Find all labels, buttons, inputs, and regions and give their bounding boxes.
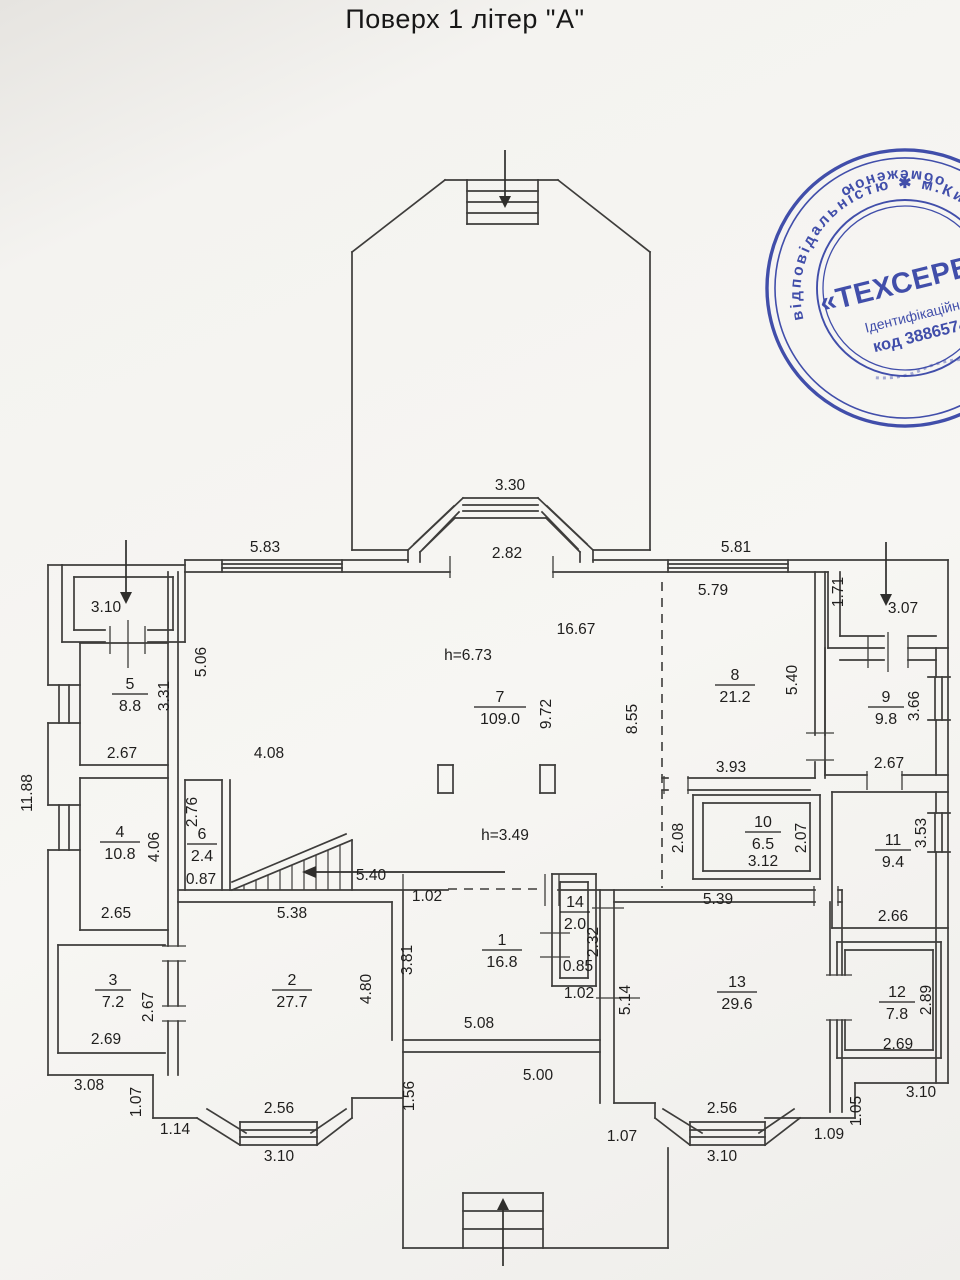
dimension-label: 11.88	[19, 774, 36, 812]
room-number: 5	[126, 676, 135, 693]
dimension-label: 2.66	[878, 908, 908, 925]
entrance-arrows	[120, 150, 892, 1266]
dimension-label: 3.31	[156, 681, 173, 711]
dimension-label: 1.02	[564, 985, 594, 1002]
room-number: 4	[116, 824, 125, 841]
dimension-label: 2.89	[918, 985, 935, 1015]
dimension-label: 4.08	[254, 745, 284, 762]
dimension-label: 1.14	[160, 1121, 191, 1138]
room-area: 8.8	[119, 698, 141, 715]
room-number: 1	[498, 932, 507, 949]
wall-segment	[232, 834, 346, 882]
dimension-label: 16.67	[557, 621, 596, 638]
room-area: 6.5	[752, 836, 774, 853]
dimension-label: 3.53	[913, 818, 930, 848]
wall-segment	[765, 1118, 800, 1145]
room-number: 2	[288, 972, 297, 989]
wall-segment	[197, 1118, 240, 1145]
dimension-label: 2.69	[883, 1036, 913, 1053]
scanned-floor-plan-page: Поверх 1 літер "А" 3.302.825.835.815.793…	[0, 0, 960, 1280]
room-number: 11	[885, 832, 902, 849]
dimension-label: 3.10	[707, 1148, 738, 1165]
dimension-label: 5.39	[703, 891, 733, 908]
dimension-label: 8.55	[624, 704, 641, 734]
room-number: 10	[754, 814, 772, 831]
dimension-label: 4.80	[358, 974, 375, 1005]
dimension-label: 2.56	[707, 1100, 737, 1117]
dimension-label: 1.71	[830, 577, 847, 607]
wall-segment	[317, 1118, 352, 1145]
room-labels: 116.8227.737.2410.858.862.47109.0821.299…	[95, 667, 915, 1023]
dimension-label: 5.79	[698, 582, 728, 599]
room-number: 7	[496, 689, 505, 706]
dimension-label: 5.08	[464, 1015, 494, 1032]
room-area: 10.8	[104, 846, 135, 863]
page-title: Поверх 1 літер "А"	[345, 4, 584, 34]
dimension-label: 2.69	[91, 1031, 121, 1048]
dimension-label: 3.93	[716, 759, 746, 776]
dimension-label: 2.76	[184, 797, 201, 827]
dimension-label: 5.83	[250, 539, 280, 556]
dimension-label: 3.08	[74, 1077, 104, 1094]
dimension-label: 0.87	[186, 871, 216, 888]
room-area: 7.2	[102, 994, 124, 1011]
dimension-label: 3.07	[888, 600, 918, 617]
dimension-label: 3.10	[264, 1148, 295, 1165]
dimension-label: 3.30	[495, 477, 526, 494]
dimension-labels: 3.302.825.835.815.793.101.713.075.0616.6…	[19, 477, 936, 1165]
dimension-label: 1.56	[401, 1081, 418, 1111]
room-area: 16.8	[486, 954, 517, 971]
dimension-label: 5.38	[277, 905, 307, 922]
dimension-label: 9.72	[538, 699, 555, 729]
room-area: 21.2	[719, 689, 750, 706]
dimension-label: 0.85	[563, 958, 593, 975]
room-area: 7.8	[886, 1006, 908, 1023]
dimension-label: 2.65	[101, 905, 131, 922]
dimension-label: 2.67	[140, 992, 157, 1022]
dimension-label: 4.06	[146, 832, 163, 862]
dimension-label: 3.81	[399, 945, 416, 975]
dimension-label: 2.32	[585, 927, 602, 957]
dimension-label: 5.40	[784, 665, 801, 696]
room-area: 9.8	[875, 711, 897, 728]
room-area: 27.7	[276, 994, 307, 1011]
dimension-label: 1.02	[412, 888, 442, 905]
wall-segment	[558, 180, 650, 252]
dimension-label: 2.67	[874, 755, 904, 772]
room-area: 2.0	[564, 916, 586, 933]
room-number: 6	[198, 826, 207, 843]
dimension-label: 2.56	[264, 1100, 294, 1117]
dimension-label: 2.82	[492, 545, 522, 562]
dimension-label: 2.07	[793, 823, 810, 853]
room-number: 13	[728, 974, 746, 991]
dimension-label: 5.81	[721, 539, 751, 556]
floor-plan-drawing: Поверх 1 літер "А" 3.302.825.835.815.793…	[0, 0, 960, 1280]
dimension-label: 1.09	[814, 1126, 844, 1143]
dimension-label: 2.67	[107, 745, 137, 762]
dimension-label: 3.12	[748, 853, 778, 870]
dimension-label: h=3.49	[481, 827, 529, 844]
room-number: 14	[566, 894, 584, 911]
dimension-label: 1.05	[848, 1096, 865, 1126]
dimension-label: 3.66	[906, 691, 923, 721]
room-area: 109.0	[480, 711, 520, 728]
dimension-label: 5.14	[617, 985, 634, 1016]
room-area: 2.4	[191, 848, 213, 865]
round-seal-stamp: відповідальністю ✱ м.Київ ✱ Україна ✱ об…	[738, 116, 960, 456]
dimension-label: h=6.73	[444, 647, 492, 664]
dimension-label: 2.08	[670, 823, 687, 853]
entrance-arrow-head	[120, 592, 132, 604]
entrance-arrow-head	[497, 1198, 509, 1210]
dimension-label: 1.07	[607, 1128, 637, 1145]
room-number: 8	[731, 667, 740, 684]
room-number: 3	[109, 972, 118, 989]
dimension-label: 1.07	[128, 1087, 145, 1117]
dimension-label: 5.06	[193, 647, 210, 677]
dimension-label: 5.40	[356, 867, 387, 884]
dimension-label: 5.00	[523, 1067, 554, 1084]
room-number: 9	[882, 689, 891, 706]
room-number: 12	[888, 984, 906, 1001]
dimension-label: 3.10	[91, 599, 122, 616]
wall-segment	[352, 180, 445, 252]
room-area: 29.6	[721, 996, 752, 1013]
room-area: 9.4	[882, 854, 904, 871]
dimension-label: 3.10	[906, 1084, 937, 1101]
